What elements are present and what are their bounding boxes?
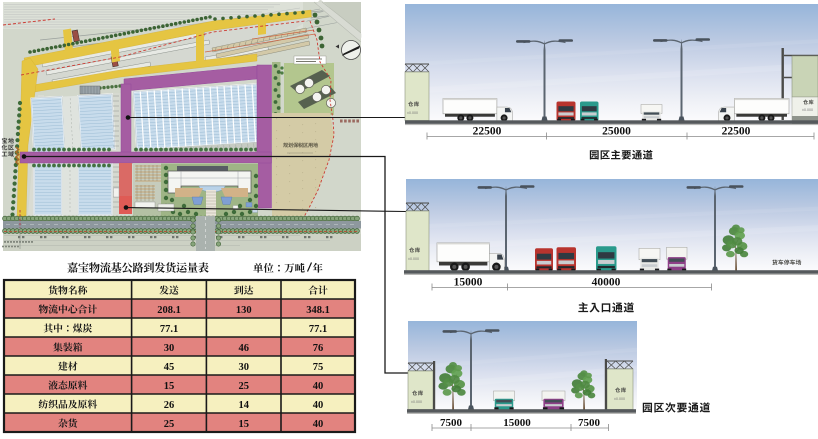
svg-text:±0.000: ±0.000	[411, 400, 422, 404]
svg-text:26: 26	[164, 400, 175, 411]
svg-text:15000: 15000	[454, 277, 483, 289]
svg-text:±0.000: ±0.000	[408, 257, 419, 261]
svg-text:±0.000: ±0.000	[407, 111, 418, 115]
svg-text:77.1: 77.1	[309, 324, 327, 335]
svg-text:15000: 15000	[503, 417, 531, 429]
svg-text:15: 15	[238, 419, 249, 430]
svg-text:40000: 40000	[592, 277, 621, 289]
svg-text:7500: 7500	[578, 417, 601, 429]
svg-text:25: 25	[238, 381, 249, 392]
svg-text:348.1: 348.1	[306, 305, 330, 316]
svg-text:7500: 7500	[440, 417, 463, 429]
svg-text:22500: 22500	[722, 126, 751, 138]
svg-text:14: 14	[238, 400, 249, 411]
svg-text:±0.000: ±0.000	[802, 108, 813, 112]
svg-text:130: 130	[236, 305, 252, 316]
svg-text:77.1: 77.1	[160, 324, 178, 335]
svg-text:208.1: 208.1	[157, 305, 181, 316]
svg-text:40: 40	[313, 419, 324, 430]
svg-text:46: 46	[238, 343, 249, 354]
svg-text:76: 76	[313, 343, 324, 354]
svg-text:±0.000: ±0.000	[614, 397, 625, 401]
svg-text:25: 25	[164, 419, 175, 430]
svg-text:40: 40	[313, 400, 324, 411]
svg-text:25000: 25000	[602, 126, 631, 138]
svg-text:75: 75	[313, 362, 324, 373]
svg-text:30: 30	[164, 343, 175, 354]
svg-text:15: 15	[164, 381, 175, 392]
svg-text:40: 40	[313, 381, 324, 392]
svg-text:45: 45	[164, 362, 175, 373]
svg-text:22500: 22500	[473, 126, 502, 138]
svg-text:30: 30	[238, 362, 249, 373]
